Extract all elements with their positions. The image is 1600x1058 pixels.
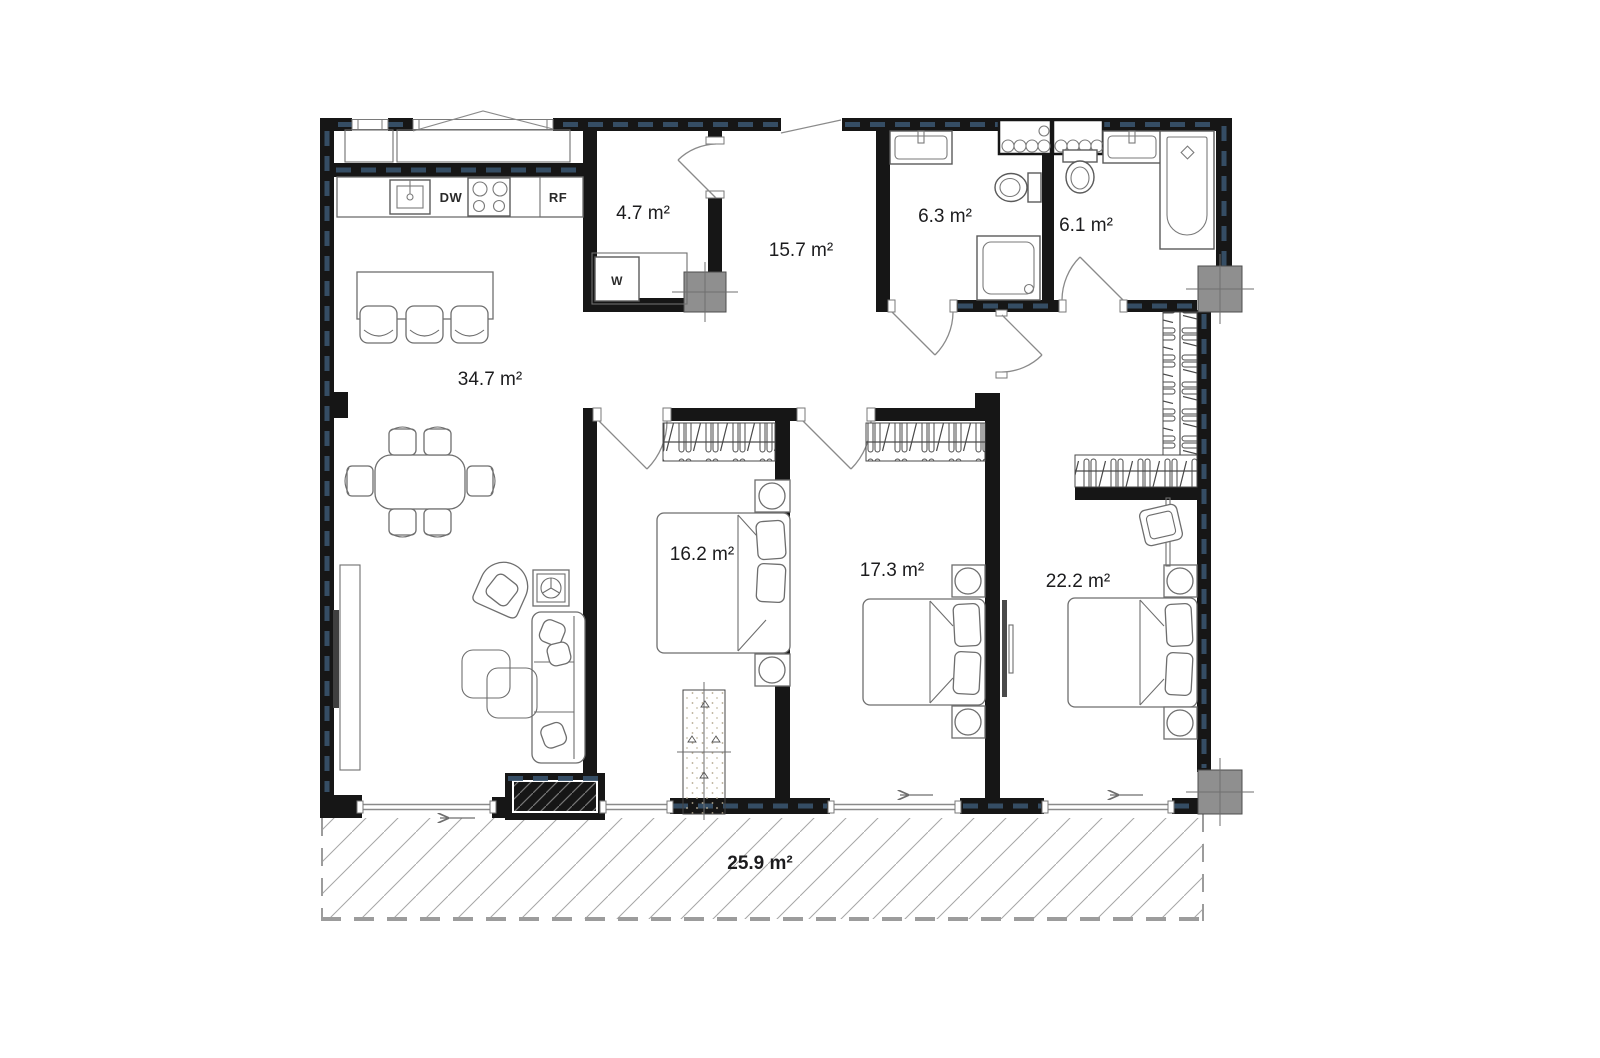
pillow-icon	[1165, 603, 1193, 646]
washer-label: W	[611, 274, 623, 288]
room-label-bedroom-3: 22.2 m²	[1046, 571, 1110, 592]
column	[672, 262, 738, 322]
wardrobe-hangers	[1163, 312, 1197, 455]
kitchen-sink-icon	[390, 180, 430, 214]
pillow-icon	[1165, 652, 1193, 695]
room-label-bedroom-2: 17.3 m²	[860, 560, 924, 581]
nightstand-icon	[755, 654, 790, 686]
coffee-table-icon	[487, 668, 537, 718]
room-label-bathroom-1: 6.3 m²	[918, 206, 972, 227]
closet-hangers	[866, 423, 985, 461]
pillow-icon	[756, 563, 786, 602]
tv-icon	[333, 610, 339, 708]
plant-table-icon	[533, 570, 569, 606]
toilet-icon	[1063, 150, 1097, 193]
terrace-step	[513, 781, 597, 812]
dishwasher-label: DW	[440, 190, 463, 205]
nightstand-icon	[952, 565, 985, 597]
vent-shaft	[1053, 120, 1103, 154]
door-arc	[797, 408, 875, 469]
door-arc	[1059, 257, 1127, 312]
door-arc	[888, 300, 957, 355]
room-label-hallway: 15.7 m²	[769, 240, 833, 261]
dining-chair-icon	[389, 429, 416, 455]
bedroom-2	[863, 565, 985, 738]
washbasin-icon	[1103, 131, 1161, 163]
dining-chair-icon	[347, 466, 373, 496]
bed-icon	[1068, 598, 1197, 707]
refrigerator-label: RF	[549, 190, 567, 205]
window-niche	[345, 130, 393, 162]
bathtub-icon	[1160, 131, 1214, 249]
sliding-door	[1042, 795, 1174, 813]
armchair-icon	[471, 555, 535, 620]
room-label-entry-laundry: 4.7 m²	[616, 203, 670, 224]
pillow-icon	[756, 520, 787, 560]
dining-chair-icon	[424, 429, 451, 455]
tv-cabinet-icon	[333, 565, 360, 770]
bed-icon	[657, 513, 790, 653]
nightstand-icon	[1164, 707, 1197, 739]
wardrobe-hangers	[1075, 455, 1197, 487]
room-label-bedroom-1: 16.2 m²	[670, 544, 734, 565]
tv-icon	[1002, 600, 1013, 697]
dining-table-icon	[345, 427, 495, 537]
window	[352, 120, 388, 130]
sliding-door	[357, 801, 496, 818]
pillow-icon	[953, 651, 981, 694]
bedroom-1	[657, 480, 790, 686]
nightstand-icon	[755, 480, 790, 512]
window	[600, 801, 673, 813]
sofa-icon	[532, 612, 585, 763]
window-niche	[397, 130, 570, 162]
column	[1186, 758, 1254, 826]
dining-chair-icon	[389, 509, 416, 535]
closets	[663, 312, 1197, 487]
bed-icon	[863, 599, 985, 705]
shower-icon	[977, 236, 1040, 300]
room-label-living-kitchen: 34.7 m²	[458, 369, 522, 390]
vent-shaft	[999, 120, 1051, 154]
coffee-table-icon	[462, 650, 510, 698]
toilet-icon	[995, 173, 1041, 202]
closet-hangers	[663, 423, 775, 461]
living-room	[333, 427, 585, 770]
bar-stool-icon	[360, 306, 397, 343]
pillow-icon	[953, 603, 981, 646]
entrance-door-line	[781, 120, 841, 133]
bar-stool-icon	[451, 306, 488, 343]
side-chair-icon	[1138, 503, 1183, 547]
sliding-door	[828, 795, 961, 813]
dining-chair-icon	[424, 509, 451, 535]
washbasin-icon	[890, 131, 952, 164]
door-arc	[678, 137, 724, 198]
room-label-terrace: 25.9 m²	[727, 853, 792, 874]
room-label-bathroom-2: 6.1 m²	[1059, 215, 1113, 236]
dining-chair-icon	[467, 466, 493, 496]
nightstand-icon	[1164, 565, 1197, 597]
laundry: W	[592, 253, 687, 304]
window	[413, 111, 553, 131]
bedroom-3	[1002, 498, 1197, 739]
door-arc	[593, 408, 671, 469]
floor-plan-canvas: DW RF	[0, 0, 1600, 1058]
stove-icon	[468, 178, 510, 216]
concrete-pier	[677, 682, 731, 820]
door-arc	[996, 310, 1042, 378]
floor-plan-drawing: DW RF	[0, 0, 1600, 1058]
nightstand-icon	[952, 706, 985, 738]
kitchen: DW RF	[337, 177, 583, 343]
bar-stool-icon	[406, 306, 443, 343]
